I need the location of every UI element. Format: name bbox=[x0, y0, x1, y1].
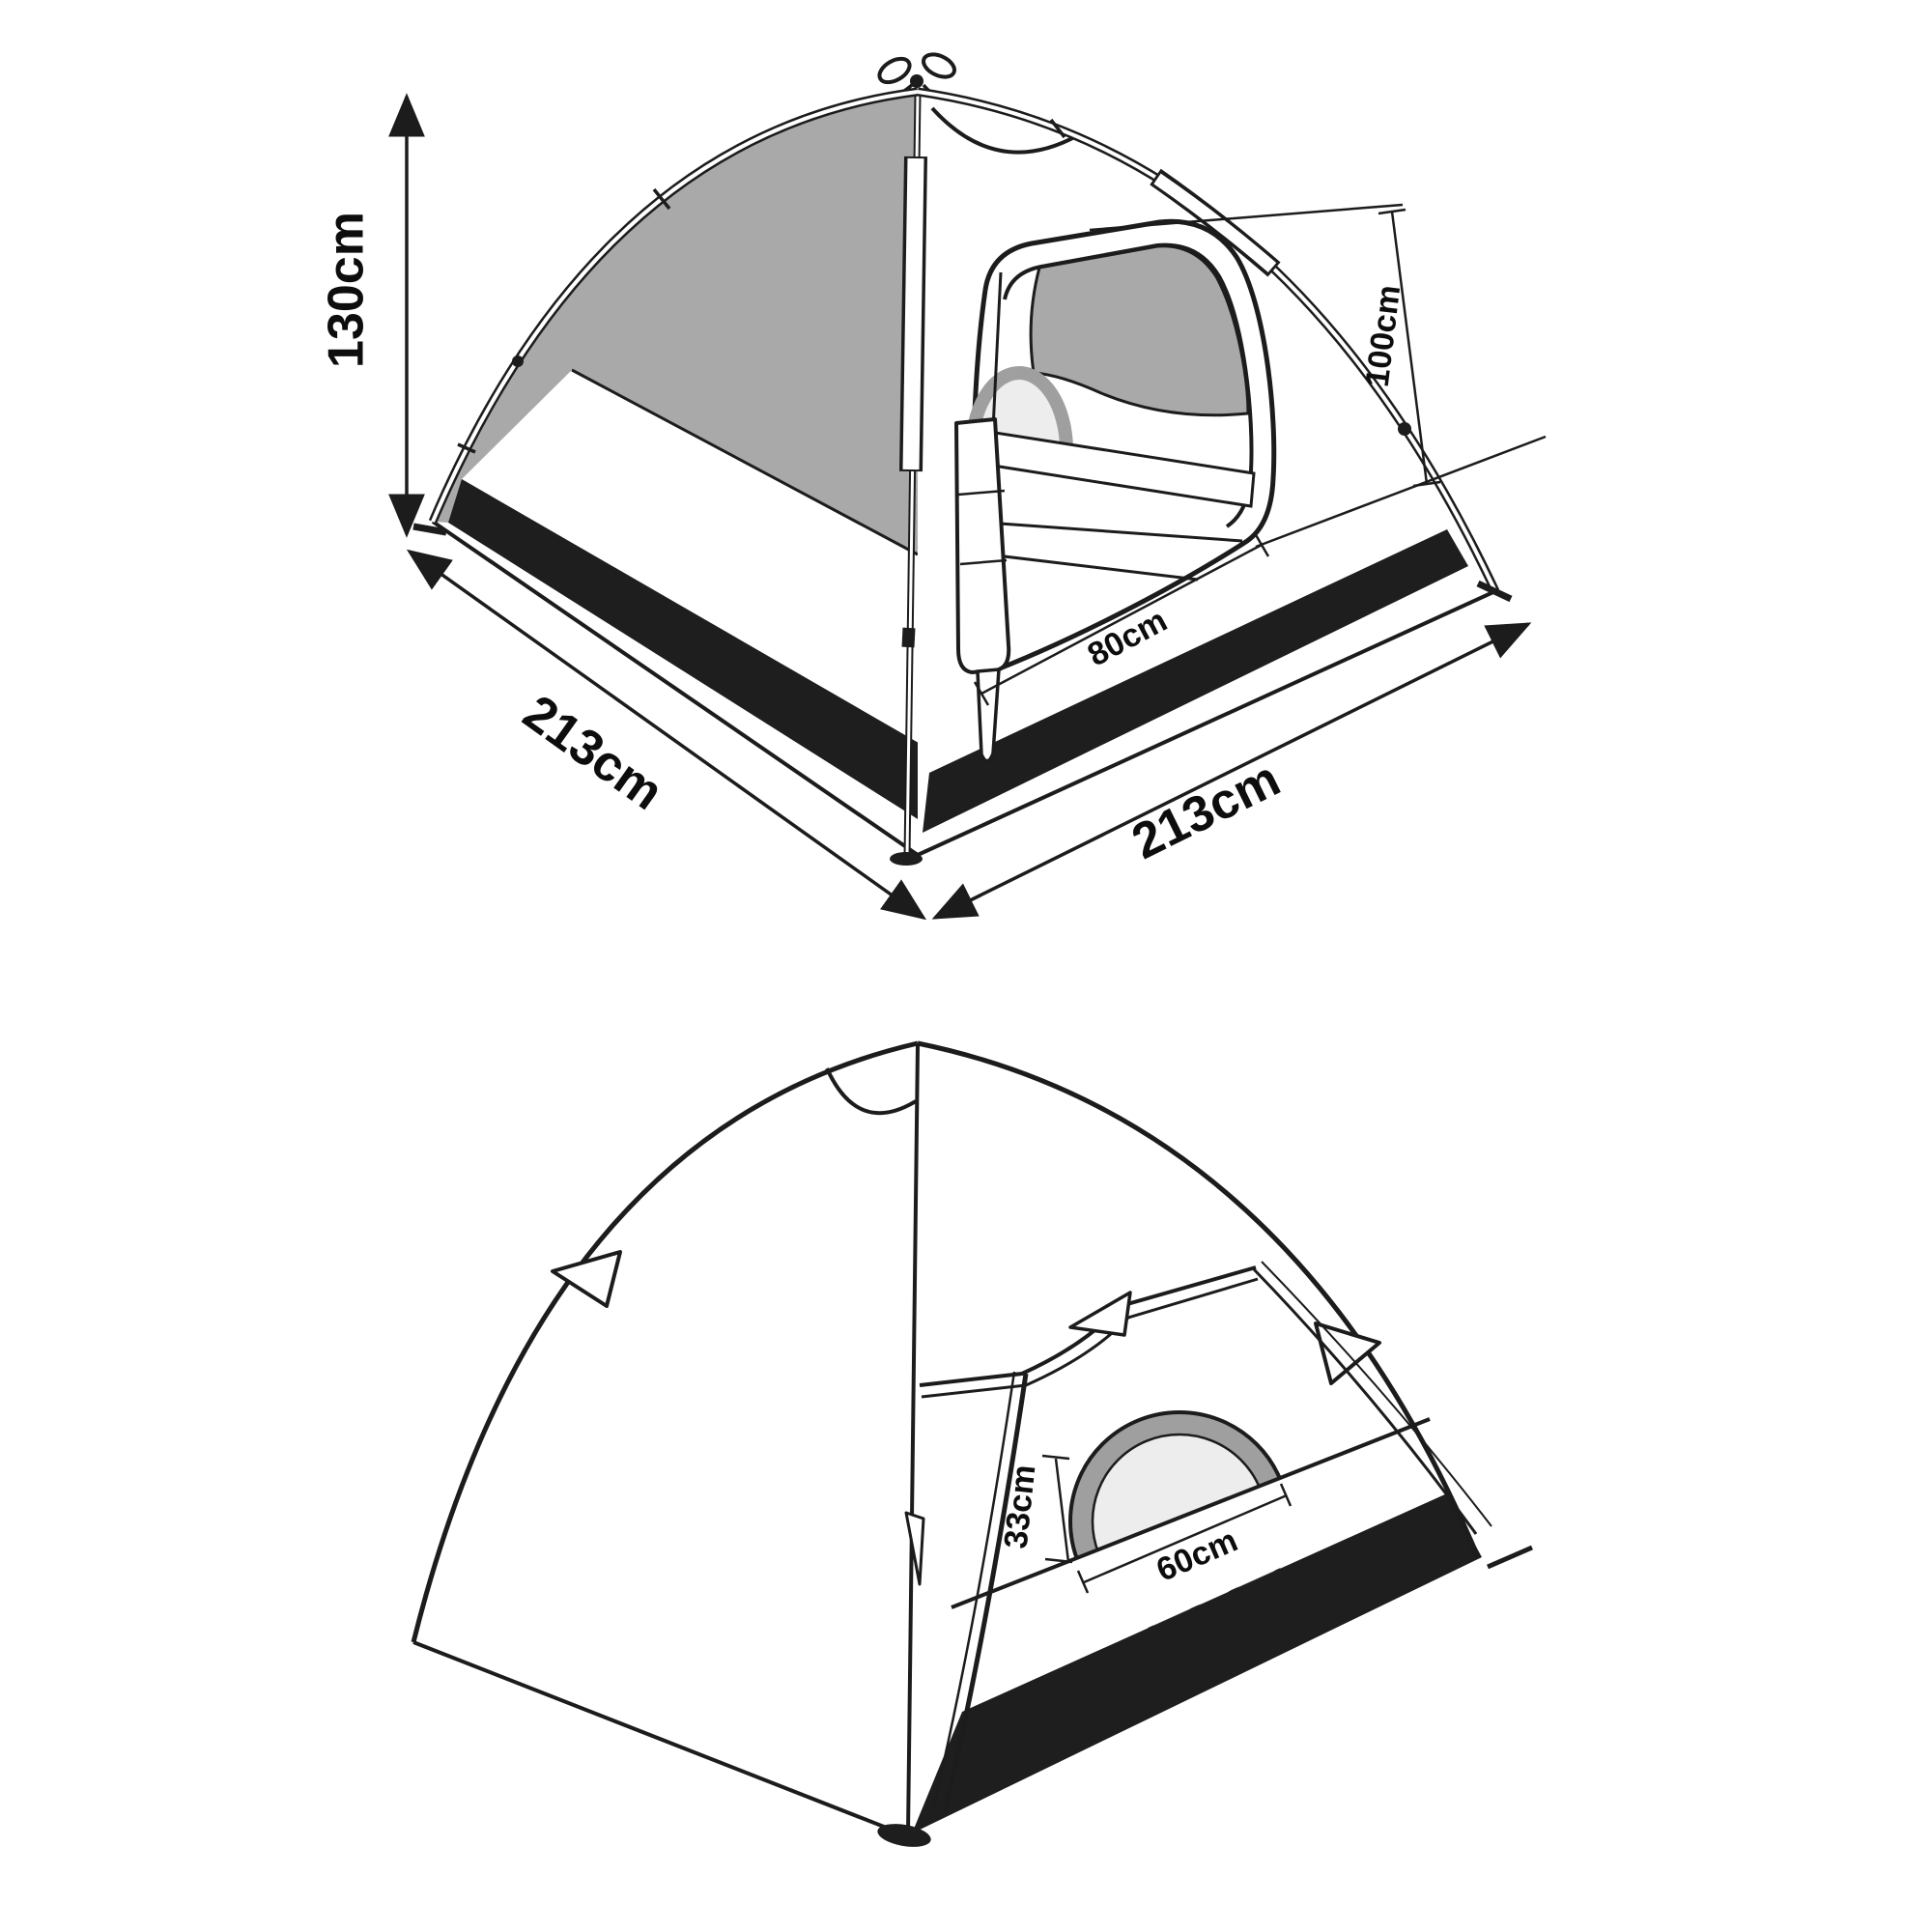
width-dimension-label: 213cm bbox=[513, 685, 673, 821]
rear-left-panel bbox=[413, 1043, 918, 1835]
height-dimension: 130cm bbox=[319, 97, 407, 534]
center-pole-sleeve-core bbox=[911, 158, 916, 469]
tent-spec-diagram: 130cm 213cm 213cm 100cm 80cm bbox=[0, 0, 1932, 1932]
center-pole-foot bbox=[890, 852, 923, 866]
right-pole-joint-dot bbox=[1398, 422, 1411, 436]
diagram-canvas: 130cm 213cm 213cm 100cm 80cm bbox=[0, 0, 1932, 1932]
height-dimension-label: 130cm bbox=[319, 212, 375, 368]
center-pole-joint bbox=[908, 628, 909, 647]
left-pole-joint-dot bbox=[512, 355, 524, 367]
rear-right-pole-foot bbox=[1488, 1548, 1532, 1567]
tent-perspective-view: 130cm 213cm 213cm 100cm 80cm bbox=[319, 50, 1546, 918]
door-height-dimension-label: 100cm bbox=[1359, 283, 1408, 389]
tent-rear-view: 33cm 60cm bbox=[413, 1043, 1532, 1851]
depth-dimension-label: 213cm bbox=[1123, 751, 1289, 870]
